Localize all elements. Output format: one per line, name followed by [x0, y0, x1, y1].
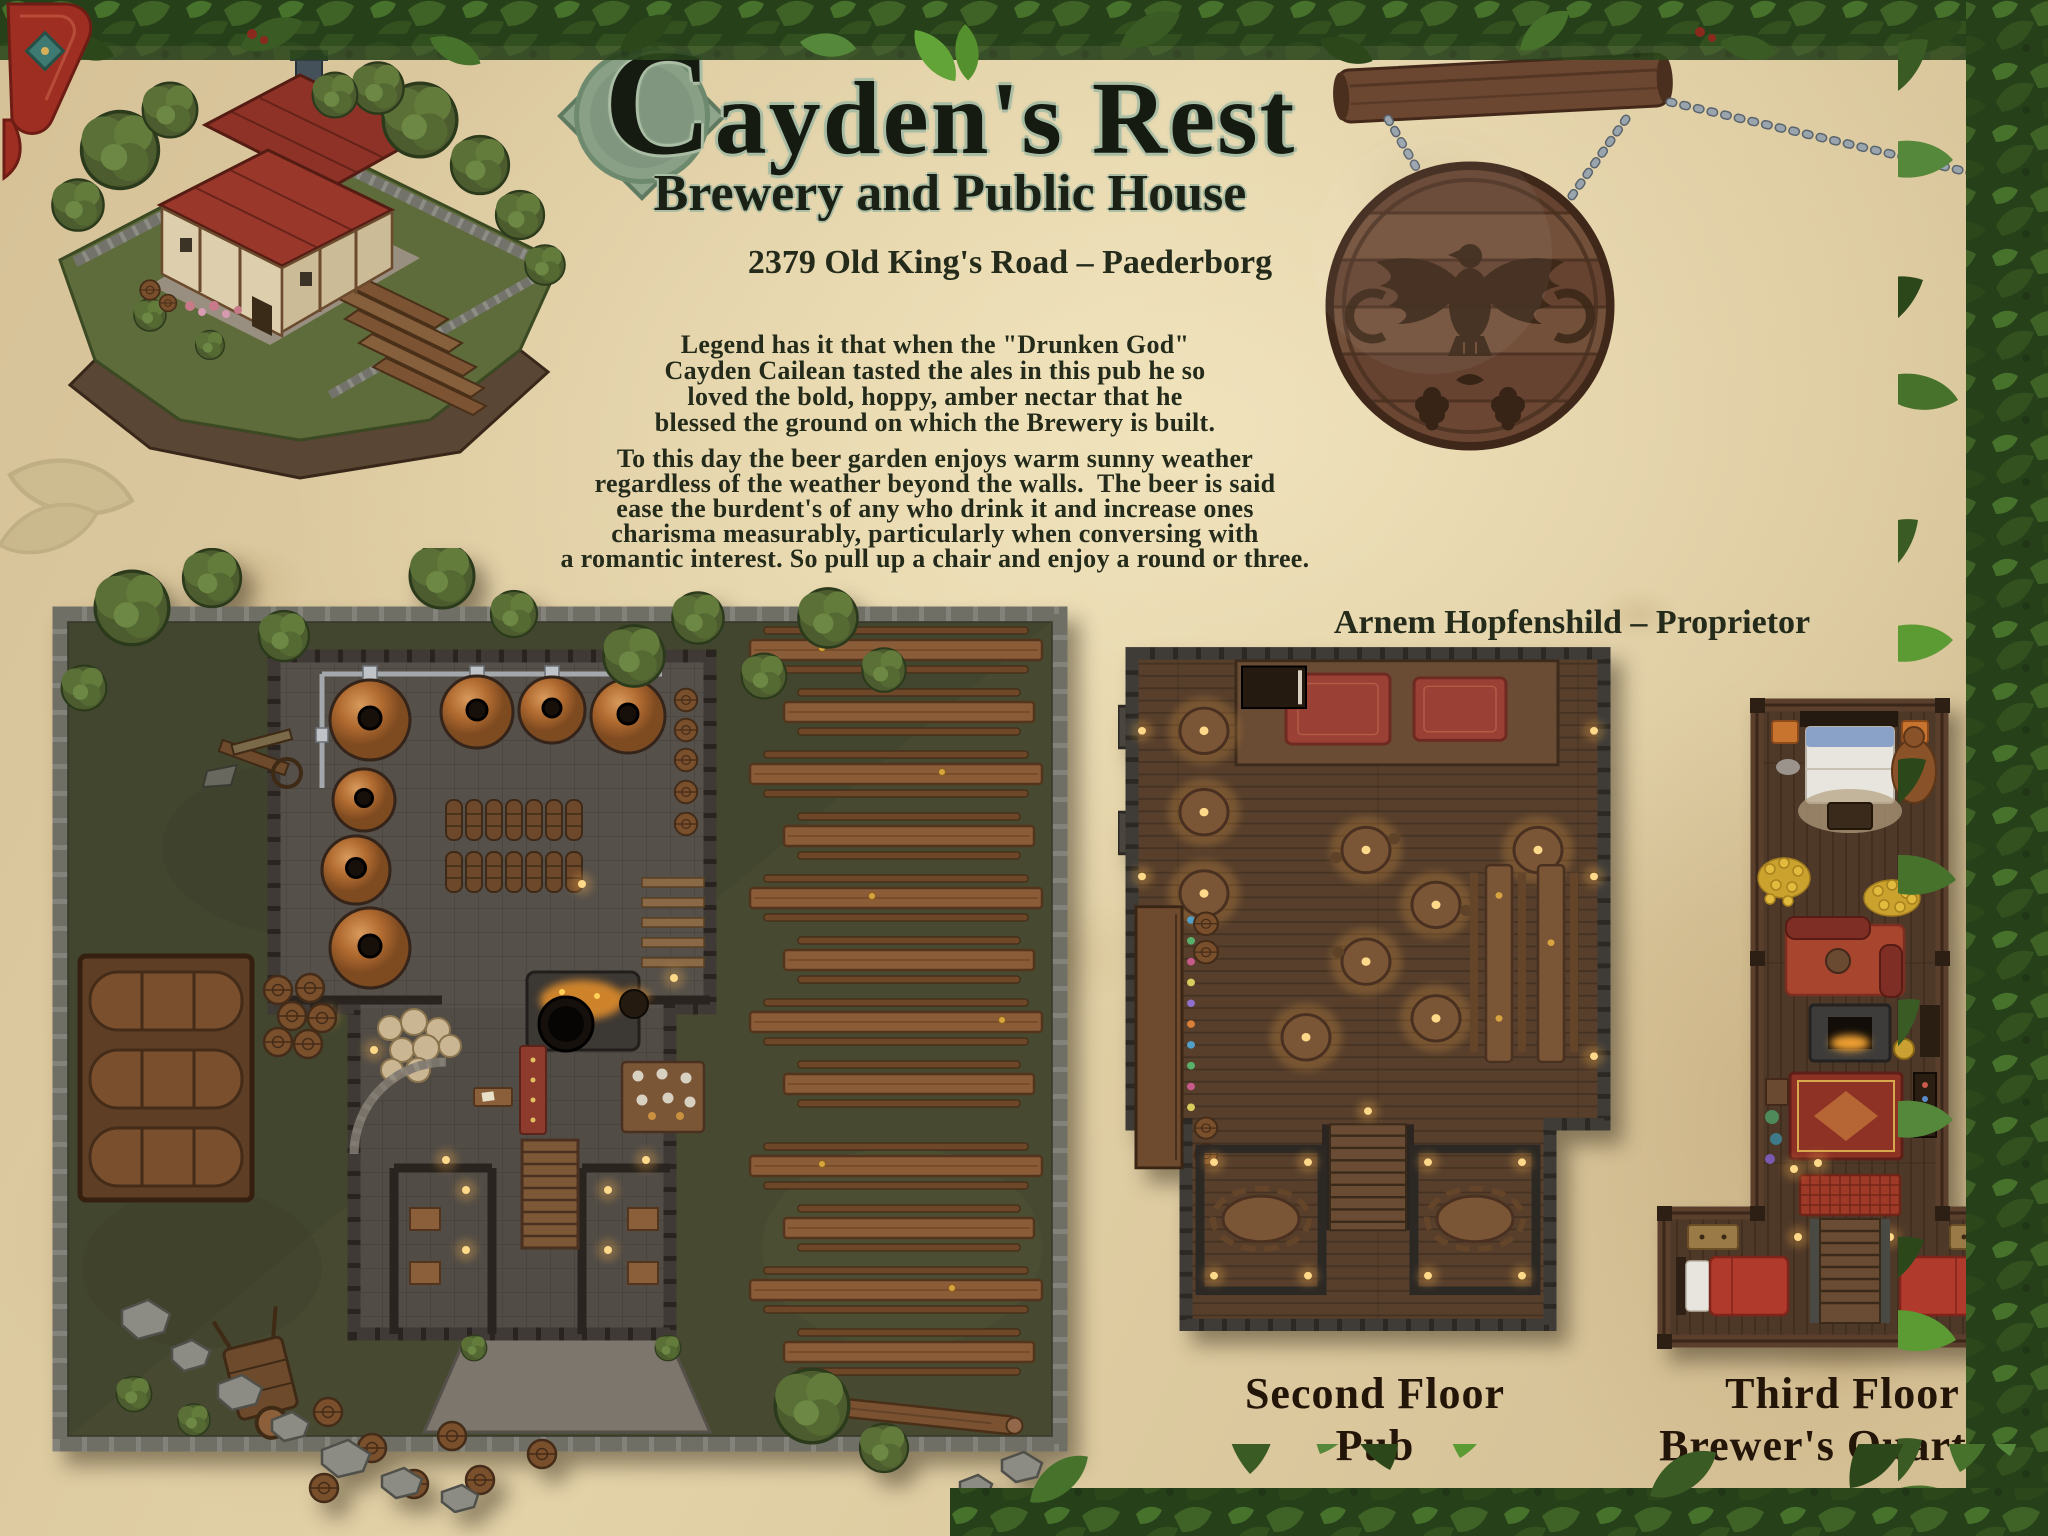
- bear-rug: [1892, 739, 1936, 803]
- couch-lounge: [1786, 917, 1904, 997]
- proprietor-line: Arnem Hopfenshild – Proprietor: [1292, 604, 1852, 642]
- side-table: [1766, 1079, 1788, 1105]
- barrel-rack: [80, 956, 252, 1200]
- second-floor-map: [1118, 640, 1618, 1340]
- piano: [1242, 666, 1306, 708]
- paragraph-line: To this day the beer garden enjoys warm …: [420, 446, 1450, 471]
- staircase: [522, 1140, 578, 1248]
- desk: [474, 1088, 512, 1106]
- stage-area: [1236, 661, 1558, 765]
- beer-garden-paragraph: To this day the beer garden enjoys warm …: [420, 446, 1450, 571]
- gold-pot: [1894, 1039, 1914, 1059]
- paragraph-line: ease the burdent's of any who drink it a…: [420, 496, 1450, 521]
- caption-line: Brewer's Quarters: [1610, 1420, 2048, 1472]
- paragraph-line: Cayden Cailean tasted the ales in this p…: [460, 358, 1410, 384]
- chest: [1828, 803, 1872, 829]
- ornate-rug: [1790, 1073, 1902, 1159]
- ground-floor-map: [22, 548, 1082, 1513]
- paragraph-line: a romantic interest. So pull up a chair …: [420, 546, 1450, 571]
- caption-line: Third Floor: [1610, 1368, 2048, 1420]
- long-tables: [1470, 865, 1578, 1062]
- poster-subtitle: Brewery and Public House: [430, 164, 1470, 223]
- paragraph-line: regardless of the weather beyond the wal…: [420, 471, 1450, 496]
- staircase: [1810, 1219, 1890, 1323]
- barrel-icon: [160, 295, 177, 312]
- cat: [1776, 759, 1800, 775]
- bookshelf: [1914, 1073, 1936, 1137]
- caption-line: Pub: [1155, 1420, 1595, 1472]
- fireplace: [1810, 1005, 1940, 1061]
- caption-line: Second Floor: [1155, 1368, 1595, 1420]
- paragraph-line: charisma measurably, particularly when c…: [420, 521, 1450, 546]
- staircase: [1322, 1124, 1414, 1230]
- paragraph-line: loved the bold, hoppy, amber nectar that…: [460, 384, 1410, 410]
- legend-paragraph: Legend has it that when the "Drunken God…: [460, 332, 1410, 436]
- third-floor-map: [1652, 693, 2037, 1353]
- third-floor-caption: Third Floor Brewer's Quarters: [1610, 1368, 2048, 1472]
- tavern-map-poster: Cayden's Rest Brewery and Public House 2…: [0, 0, 2048, 1536]
- paragraph-line: blessed the ground on which the Brewery …: [460, 410, 1410, 436]
- barrel-icon: [140, 280, 160, 300]
- second-floor-caption: Second Floor Pub: [1155, 1368, 1595, 1472]
- furnace-cauldron: [527, 972, 650, 1051]
- food-table: [622, 1062, 704, 1132]
- building: [0, 0, 425, 336]
- address-line: 2379 Old King's Road – Paederborg: [500, 244, 1520, 282]
- paragraph-line: Legend has it that when the "Drunken God…: [460, 332, 1410, 358]
